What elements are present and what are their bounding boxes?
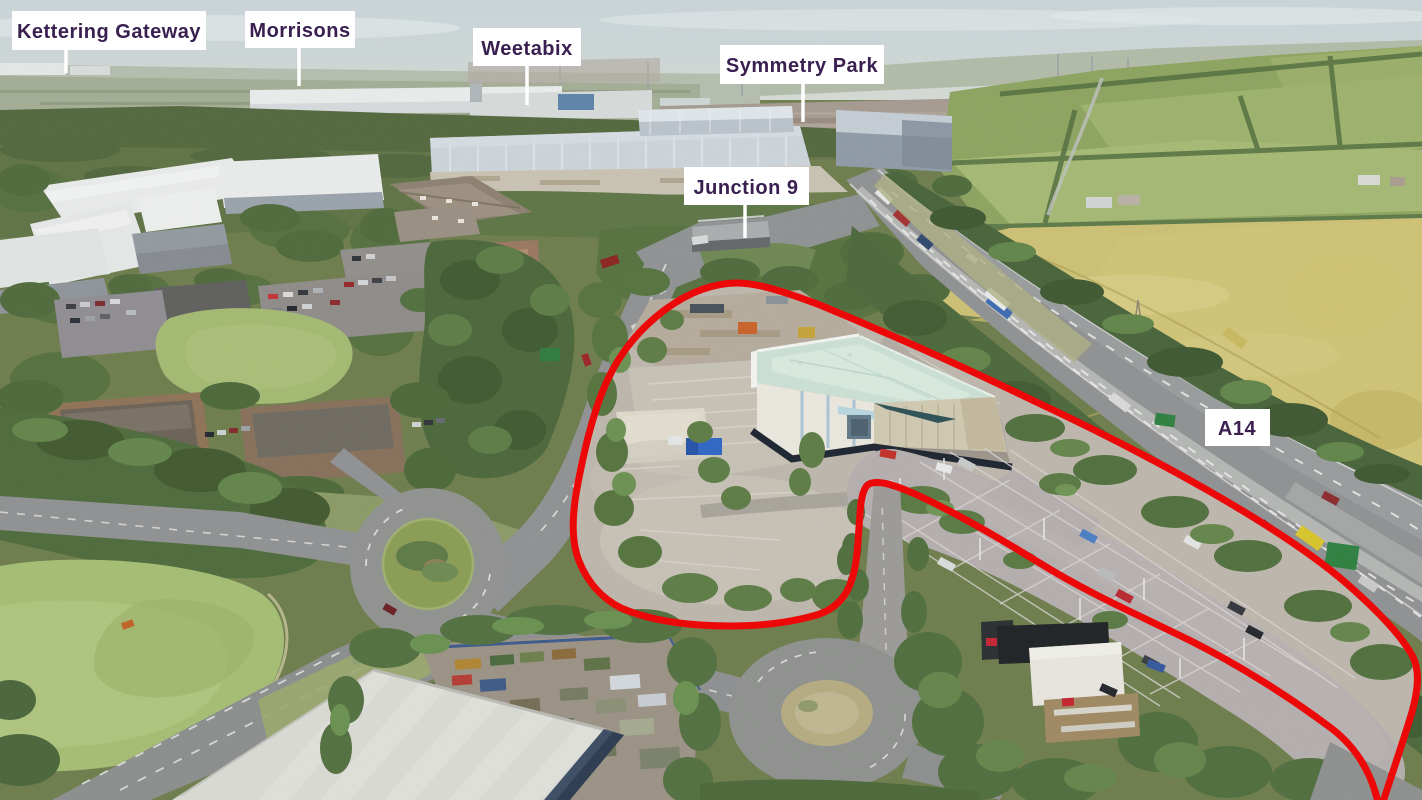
- svg-text:Kettering Gateway: Kettering Gateway: [17, 21, 201, 43]
- svg-text:Morrisons: Morrisons: [249, 20, 350, 42]
- svg-text:Symmetry Park: Symmetry Park: [726, 55, 879, 77]
- svg-text:Weetabix: Weetabix: [481, 38, 572, 60]
- svg-text:Junction 9: Junction 9: [693, 177, 798, 199]
- svg-text:A14: A14: [1218, 418, 1257, 440]
